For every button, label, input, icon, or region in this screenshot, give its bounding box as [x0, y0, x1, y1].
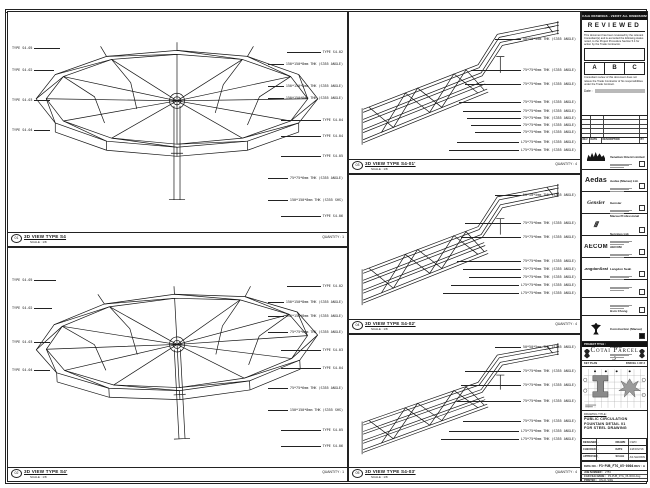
date-fill-bar [595, 89, 645, 93]
leader-line [449, 431, 519, 432]
field-label: DESIGNED [582, 439, 597, 445]
member-callout: 75*75*6mm THK (S355 ANGLE) [465, 369, 576, 373]
grade-c: C [625, 63, 644, 74]
leader-line [441, 439, 519, 440]
member-callout: 150*150*8mm THK (S355 ANGLE) [268, 84, 343, 88]
member-callout: 150*150*8mm THK (S355 ANGLE) [268, 96, 343, 100]
member-callout: TYPE S4-06 [281, 444, 343, 448]
member-callout: TYPE S4-04 [281, 366, 343, 370]
consultant-row: LangdonSeah Langdon Seah [582, 258, 647, 280]
leader-line [465, 371, 521, 372]
callout-text: 150*150*8mm THK (S355 ANGLE) [286, 96, 343, 100]
key-plan [582, 367, 647, 411]
panel-3d-view-s4-prime: TYPE S4-02150*150*8mm THK (S355 ANGLE)15… [7, 247, 348, 482]
micro-row-label: JOB NUMBER : [584, 471, 603, 474]
member-callout: 75*75*6mm THK (S355 ANGLE) [475, 130, 576, 134]
dwg-number-value: P3-PUB_FTG_05-0004 [599, 464, 634, 468]
callout-text: 75*75*6mm THK (S355 ANGLE) [290, 386, 343, 390]
view-scale: SCALE : 1/8 [371, 327, 416, 331]
leader-line [281, 216, 321, 217]
leader-line [34, 130, 50, 131]
view-ref-bubble: 03 [352, 161, 363, 170]
leader-line [465, 84, 521, 85]
consultant-row [582, 280, 647, 298]
truss-drawing-s4-03: 50*50*5mm THK (S355 ANGLE)75*75*6mm THK … [349, 335, 580, 467]
member-callout: 75*75*6mm THK (S355 ANGLE) [461, 383, 576, 387]
callout-text: TYPE S4-02 [12, 306, 32, 310]
member-callout: 50*50*5mm THK (S355 ANGLE) [495, 345, 576, 349]
callout-text: 75*75*6mm THK (S355 ANGLE) [523, 275, 576, 279]
member-callout: 50*50*5mm THK (S355 ANGLE) [495, 193, 576, 197]
consultant-checkbox [639, 161, 645, 167]
callout-text: L75*75*6mm THK (S355 ANGLE) [521, 148, 576, 152]
member-callout: L75*75*6mm THK (S355 ANGLE) [449, 429, 576, 433]
member-callout: 75*75*6mm THK (S355 ANGLE) [465, 221, 576, 225]
leader-line [457, 261, 521, 262]
callout-text: 75*75*6mm THK (S355 ANGLE) [290, 330, 343, 334]
consultant-name: Macau Professional Services Ltd. [610, 214, 639, 236]
canopy-structure-svg [8, 248, 347, 467]
key-plan-svg [582, 367, 647, 410]
leader-line [463, 269, 521, 270]
consultant-checkbox [639, 289, 645, 295]
leader-line [287, 52, 321, 53]
date-label: Date : [584, 89, 593, 93]
truss-drawing-s4-01: 50*50*5mm THK (S355 ANGLE)75*75*6mm THK … [349, 12, 580, 159]
callout-text: 75*75*6mm THK (S355 ANGLE) [523, 399, 576, 403]
consultant-logo [584, 152, 608, 161]
view-scale: SCALE : 1/8 [30, 475, 67, 479]
member-callout: 75*75*6mm THK (S355 ANGLE) [469, 275, 576, 279]
callout-text: 150*150*8mm THK (S355 ANGLE) [286, 314, 343, 318]
consultant-logo: LangdonSeah [584, 266, 608, 271]
callout-text: L75*75*6mm THK (S355 ANGLE) [521, 437, 576, 441]
callout-text: 75*75*6mm THK (S355 ANGLE) [523, 109, 576, 113]
member-callout: 75*75*6mm THK (S355 ANGLE) [461, 235, 576, 239]
callout-text: 75*75*6mm THK (S355 ANGLE) [523, 259, 576, 263]
panel-3d-view-s4-03: 50*50*5mm THK (S355 ANGLE)75*75*6mm THK … [348, 334, 581, 482]
consultant-logo-mark: /// [593, 220, 599, 229]
member-callout: L75*75*6mm THK (S355 ANGLE) [449, 148, 576, 152]
panel-3d-view-s4: TYPE S4-02150*150*8mm THK (S355 ANGLE)15… [7, 11, 348, 247]
member-callout: TYPE S4-04 [281, 134, 343, 138]
callout-text: TYPE S4-05 [12, 46, 32, 50]
member-callout: 150*150*8mm THK (S355 ANGLE) [268, 300, 343, 304]
leader-line [443, 293, 519, 294]
callout-text: TYPE S4-04 [323, 118, 343, 122]
revision-header-cell: DESCRIPTION [602, 138, 640, 143]
leader-line [471, 70, 521, 71]
member-callout: 75*75*6mm THK (S355 ANGLE) [463, 267, 576, 271]
member-callout: TYPE S4-02 [287, 284, 343, 288]
leader-line [34, 370, 50, 371]
leader-line [495, 347, 521, 348]
consultant-name: AECOM [610, 245, 622, 249]
field-label: DRAWN [615, 439, 629, 445]
member-callout: TYPE S4-05 [12, 278, 56, 282]
member-callout: TYPE S4-05 [281, 154, 343, 158]
leader-line [471, 125, 521, 126]
member-callout: 75*75*6mm THK (S355 ANGLE) [268, 330, 343, 334]
drawing-title-line: FOR STEEL DRAWING [584, 426, 645, 431]
consultant-checkbox [639, 249, 645, 255]
view-ref-bubble: 02 [11, 469, 22, 478]
field-value: - [597, 455, 615, 459]
leader-line [281, 446, 321, 447]
consultant-logo: AECOM [584, 244, 608, 250]
consultant-row: AECOM AECOM [582, 236, 647, 258]
signature-field: DATE 14/NOV/16 [615, 446, 648, 453]
member-callout: 75*75*6mm THK (S355 ANGLE) [471, 68, 576, 72]
member-callout: 75*75*6mm THK (S355 ANGLE) [457, 259, 576, 263]
leader-line [461, 237, 521, 238]
callout-text: L75*75*6mm THK (S355 ANGLE) [521, 429, 576, 433]
member-callout: TYPE S4-05 [281, 428, 343, 432]
revision-table-header: REVDATEDESCRIPTIONBY [582, 137, 647, 143]
truss-drawing-s4-02: 50*50*5mm THK (S355 ANGLE)75*75*6mm THK … [349, 175, 580, 319]
callout-text: 75*75*6mm THK (S355 ANGLE) [523, 100, 576, 104]
leader-line [475, 132, 521, 133]
callout-text: TYPE S4-04 [323, 134, 343, 138]
view-ref-bubble: 05 [352, 469, 363, 478]
leader-line [469, 277, 521, 278]
callout-text: 150*150*8mm THK (S355 ANGLE) [286, 300, 343, 304]
leader-line [268, 316, 284, 317]
review-grades: A B C [584, 62, 645, 75]
field-label: CHECKED [582, 446, 597, 452]
review-grade-row [584, 48, 645, 61]
member-callout: TYPE S4-02 [12, 306, 52, 310]
leader-line [495, 195, 521, 196]
callout-text: 75*75*6mm THK (S355 ANGLE) [523, 235, 576, 239]
leader-line [268, 98, 284, 99]
leader-line [467, 118, 521, 119]
consultant-logo: /// [584, 220, 608, 229]
review-stamp-title: REVIEWED [584, 21, 645, 32]
consultant-name: Langdon Seah [610, 267, 631, 271]
revision-table: REVDATEDESCRIPTIONBY [582, 116, 647, 144]
leader-line [451, 285, 519, 286]
consultant-checkbox [639, 227, 645, 233]
callout-text: 75*75*6mm THK (S355 ANGLE) [523, 267, 576, 271]
dwg-rev: REV : A [634, 464, 645, 468]
consultant-row: Hsin Chong Construction (Macau) Co., Ltd… [582, 316, 647, 342]
signature-fields: DESIGNED - DRAWN CWO CHECKED - DATE 14/N… [582, 439, 647, 462]
leader-line [268, 200, 288, 201]
callout-text: 75*75*6mm THK (S355 ANGLE) [523, 116, 576, 120]
callout-text: 150*150*8mm THK (S355 ANGLE) [286, 62, 343, 66]
consultant-logo-mark: AECOM [584, 244, 608, 250]
callout-text: 75*75*6mm THK (S355 ANGLE) [523, 419, 576, 423]
callout-text: 75*75*6mm THK (S355 ANGLE) [523, 369, 576, 373]
field-label: SCALE [615, 454, 629, 460]
member-callout: L75*75*6mm THK (S355 ANGLE) [451, 283, 576, 287]
member-callout: TYPE S4-05 [12, 46, 60, 50]
leader-line [268, 302, 284, 303]
consultant-logo-mark [591, 323, 601, 335]
key-plan-label: KEY PLAN [584, 362, 597, 365]
consultant-name: Venetian Orient Limited [610, 155, 645, 159]
member-callout: TYPE S4-02 [12, 68, 54, 72]
leader-line [281, 120, 321, 121]
consultant-row: Venetian Orient Limited [582, 144, 647, 170]
callout-text: TYPE S4-06 [323, 444, 343, 448]
grade-a: A [585, 63, 605, 74]
quantity-note: QUANTITY : 4 [555, 162, 577, 166]
member-callout: 75*75*6mm THK (S355 ANGLE) [457, 399, 576, 403]
view-title-bar: 01 3D VIEW TYPE S4 SCALE : 1/8 QUANTITY … [8, 232, 347, 246]
member-callout: 75*75*6mm THK (S355 ANGLE) [268, 386, 343, 390]
quantity-note: QUANTITY : 1 [322, 470, 344, 474]
leader-line [287, 286, 321, 287]
review-stamp-body2: Consultant review of this document does … [584, 76, 645, 86]
leader-line [34, 342, 50, 343]
leader-line [457, 142, 519, 143]
consultant-name: Aedas (Macau) Ltd. [610, 179, 638, 183]
footer-micro-row: PRINTED : ON A1 SIZE [582, 479, 647, 482]
review-stamp-body: This document has been reviewed by the r… [584, 34, 645, 47]
callout-text: 75*75*6mm THK (S355 ANGLE) [523, 130, 576, 134]
leader-line [449, 150, 519, 151]
member-callout: 75*75*6mm THK (S355 ANGLE) [471, 123, 576, 127]
member-callout: TYPE S4-03 [12, 98, 50, 102]
callout-text: 50*50*5mm THK (S355 ANGLE) [523, 193, 576, 197]
member-callout: 150*150*8mm THK (S355 SHS) [268, 408, 343, 412]
grade-b: B [605, 63, 625, 74]
member-callout: TYPE S4-04 [12, 368, 50, 372]
member-callout: 75*75*6mm THK (S355 ANGLE) [463, 109, 576, 113]
review-stamp: REVIEWED This document has been reviewed… [582, 20, 647, 116]
canopy-drawing-s4-prime: TYPE S4-02150*150*8mm THK (S355 ANGLE)15… [8, 248, 347, 467]
leader-line [281, 368, 321, 369]
field-value: - [597, 440, 615, 444]
callout-text: 75*75*6mm THK (S355 ANGLE) [523, 221, 576, 225]
consultant-logo-mark: Aedas [585, 177, 607, 184]
field-value: 14/NOV/16 [629, 447, 646, 451]
member-callout: 150*150*8mm THK (S355 ANGLE) [268, 62, 343, 66]
consultant-logo [584, 323, 608, 335]
member-callout: 75*75*6mm THK (S355 ANGLE) [465, 82, 576, 86]
leader-line [268, 388, 288, 389]
leader-line [463, 111, 521, 112]
member-callout: 75*75*6mm THK (S355 ANGLE) [463, 419, 576, 423]
micro-row-value: P3-PUB_FTG_05-0004.dwg [608, 475, 640, 478]
micro-row-label: CAD FILE NAME : [584, 475, 606, 478]
leader-line [268, 410, 288, 411]
consultant-row: Aedas Aedas (Macau) Ltd. [582, 170, 647, 192]
dwg-number-row: DWG NO. : P3-PUB_FTG_05-0004 REV : A [582, 462, 647, 471]
callout-text: 75*75*6mm THK (S355 ANGLE) [523, 68, 576, 72]
member-callout: TYPE S4-04 [281, 118, 343, 122]
field-value: CWO [629, 440, 646, 444]
field-label: DATE [615, 446, 629, 452]
revision-header-cell: BY [640, 138, 647, 143]
callout-text: 150*150*8mm THK (S355 SHS) [290, 408, 343, 412]
review-date-line: Date : [584, 89, 645, 93]
callout-text: TYPE S4-05 [12, 278, 32, 282]
callout-text: TYPE S4-03 [12, 340, 32, 344]
callout-text: TYPE S4-04 [12, 368, 32, 372]
member-callout: 75*75*6mm THK (S355 ANGLE) [467, 116, 576, 120]
callout-text: 150*150*8mm THK (S355 ANGLE) [286, 84, 343, 88]
callout-text: L75*75*6mm THK (S355 ANGLE) [521, 283, 576, 287]
leader-line [457, 401, 521, 402]
quantity-note: QUANTITY : 4 [555, 470, 577, 474]
footer-micro-rows: JOB NUMBER : 2753 CAD FILE NAME : P3-PUB… [582, 471, 647, 482]
consultant-checkbox [639, 333, 645, 339]
drawing-title-label: DRAWING TITLE: [584, 412, 645, 416]
view-title-bar: 03 3D VIEW TYPE S4-01' SCALE : 1/8 QUANT… [349, 159, 580, 173]
consultant-name: Hsin Chong Construction (Macau) Co., Ltd… [610, 309, 642, 349]
member-callout: 75*75*6mm THK (S355 ANGLE) [459, 100, 576, 104]
member-callout: 75*75*6mm THK (S355 ANGLE) [268, 176, 343, 180]
leader-line [34, 280, 56, 281]
title-block-strip: DO NOT SCALE DRAWINGS - VERIFY ALL DIMEN… [581, 11, 648, 482]
view-title-bar: 04 3D VIEW TYPE S4-02' SCALE : 1/8 QUANT… [349, 319, 580, 333]
micro-row-value: ON A1 SIZE [599, 479, 613, 482]
member-callout: L75*75*6mm THK (S355 ANGLE) [441, 437, 576, 441]
member-callout: 150*150*8mm THK (S355 ANGLE) [268, 314, 343, 318]
callout-text: TYPE S4-04 [323, 366, 343, 370]
field-label: APPROVED [582, 454, 597, 460]
leader-line [34, 308, 52, 309]
signature-field: APPROVED - [582, 454, 615, 461]
consultant-checkbox [639, 183, 645, 189]
leader-line [268, 178, 288, 179]
consultant-logo-mark [587, 152, 605, 161]
quantity-note: QUANTITY : 1 [322, 235, 344, 239]
field-value: AS SHOWN [629, 455, 646, 459]
field-value: - [597, 447, 615, 451]
leader-line [268, 86, 284, 87]
leader-line [281, 350, 321, 351]
consultant-logo: Gensler [584, 200, 608, 206]
callout-text: TYPE S4-02 [12, 68, 32, 72]
callout-text: L75*75*6mm THK (S355 ANGLE) [521, 140, 576, 144]
member-callout: TYPE S4-03 [281, 348, 343, 352]
callout-text: TYPE S4-02 [323, 284, 343, 288]
consultant-list: Venetian Orient Limited Aedas Aedas (Mac… [582, 144, 647, 342]
leader-line [281, 156, 321, 157]
callout-text: 75*75*6mm THK (S355 ANGLE) [523, 383, 576, 387]
leader-line [495, 39, 521, 40]
callout-text: TYPE S4-06 [323, 214, 343, 218]
micro-row-label: PRINTED : [584, 479, 597, 482]
signature-field: SCALE AS SHOWN [615, 454, 648, 461]
leader-line [281, 136, 321, 137]
callout-text: L75*75*6mm THK (S355 ANGLE) [521, 291, 576, 295]
revision-header-cell: DATE [590, 138, 602, 143]
view-ref-bubble: 04 [352, 321, 363, 330]
view-title-bar: 02 3D VIEW TYPE S4' SCALE : 1/8 QUANTITY… [8, 467, 347, 481]
revision-header-cell: REV [582, 138, 590, 143]
callout-text: 50*50*5mm THK (S355 ANGLE) [523, 37, 576, 41]
callout-text: 75*75*6mm THK (S355 ANGLE) [523, 123, 576, 127]
member-callout: TYPE S4-02 [287, 50, 343, 54]
callout-text: TYPE S4-02 [323, 50, 343, 54]
leader-line [34, 48, 60, 49]
canopy-drawing-s4: TYPE S4-02150*150*8mm THK (S355 ANGLE)15… [8, 12, 347, 232]
callout-text: 150*150*8mm THK (S355 SHS) [290, 198, 343, 202]
view-title-bar: 05 3D VIEW TYPE S4-03' SCALE : 1/8 QUANT… [349, 467, 580, 481]
leader-line [463, 421, 521, 422]
panel-3d-view-s4-01: 50*50*5mm THK (S355 ANGLE)75*75*6mm THK … [348, 11, 581, 174]
leader-line [459, 102, 521, 103]
drawing-title-box: DRAWING TITLE: PUBLIC CIRCULATION FOUNTA… [582, 411, 647, 439]
member-callout: L75*75*6mm THK (S355 ANGLE) [457, 140, 576, 144]
drawing-sheet: TYPE S4-02150*150*8mm THK (S355 ANGLE)15… [0, 0, 650, 488]
micro-row-value: 2753 [605, 471, 611, 474]
consultant-logo: Aedas [584, 177, 608, 184]
callout-text: TYPE S4-03 [323, 348, 343, 352]
leader-line [34, 100, 50, 101]
dwg-number-label: DWG NO. : [584, 464, 598, 468]
member-callout: TYPE S4-04 [12, 128, 50, 132]
leader-line [34, 70, 54, 71]
signature-field: DRAWN CWO [615, 439, 648, 446]
callout-text: 75*75*6mm THK (S355 ANGLE) [523, 82, 576, 86]
callout-text: 75*75*6mm THK (S355 ANGLE) [290, 176, 343, 180]
callout-text: TYPE S4-05 [323, 154, 343, 158]
callout-text: 50*50*5mm THK (S355 ANGLE) [523, 345, 576, 349]
sheet-note-bar: DO NOT SCALE DRAWINGS - VERIFY ALL DIMEN… [582, 12, 647, 20]
consultant-checkbox [639, 271, 645, 277]
panel-3d-view-s4-02: 50*50*5mm THK (S355 ANGLE)75*75*6mm THK … [348, 174, 581, 334]
key-plan-parcel: PARCEL 1 OF 3 [626, 362, 645, 365]
view-scale: SCALE : 1/8 [371, 475, 416, 479]
view-scale: SCALE : 1/8 [30, 240, 66, 244]
signature-field: CHECKED - [582, 446, 615, 453]
consultant-logo-mark: Gensler [587, 200, 605, 206]
consultant-logo-mark: LangdonSeah [584, 266, 608, 271]
member-callout: TYPE S4-06 [281, 214, 343, 218]
quantity-note: QUANTITY : 4 [555, 322, 577, 326]
member-callout: TYPE S4-03 [12, 340, 50, 344]
member-callout: 150*150*8mm THK (S355 SHS) [268, 198, 343, 202]
leader-line [465, 223, 521, 224]
leader-line [268, 64, 284, 65]
leader-line [281, 430, 321, 431]
signature-field: DESIGNED - [582, 439, 615, 446]
view-scale: SCALE : 1/8 [371, 167, 416, 171]
view-ref-bubble: 01 [11, 234, 22, 243]
leader-line [268, 332, 288, 333]
consultant-row: /// Macau Professional Services Ltd. [582, 214, 647, 236]
leader-line [461, 385, 521, 386]
callout-text: TYPE S4-03 [12, 98, 32, 102]
callout-text: TYPE S4-04 [12, 128, 32, 132]
member-callout: 50*50*5mm THK (S355 ANGLE) [495, 37, 576, 41]
member-callout: L75*75*6mm THK (S355 ANGLE) [443, 291, 576, 295]
callout-text: TYPE S4-05 [323, 428, 343, 432]
